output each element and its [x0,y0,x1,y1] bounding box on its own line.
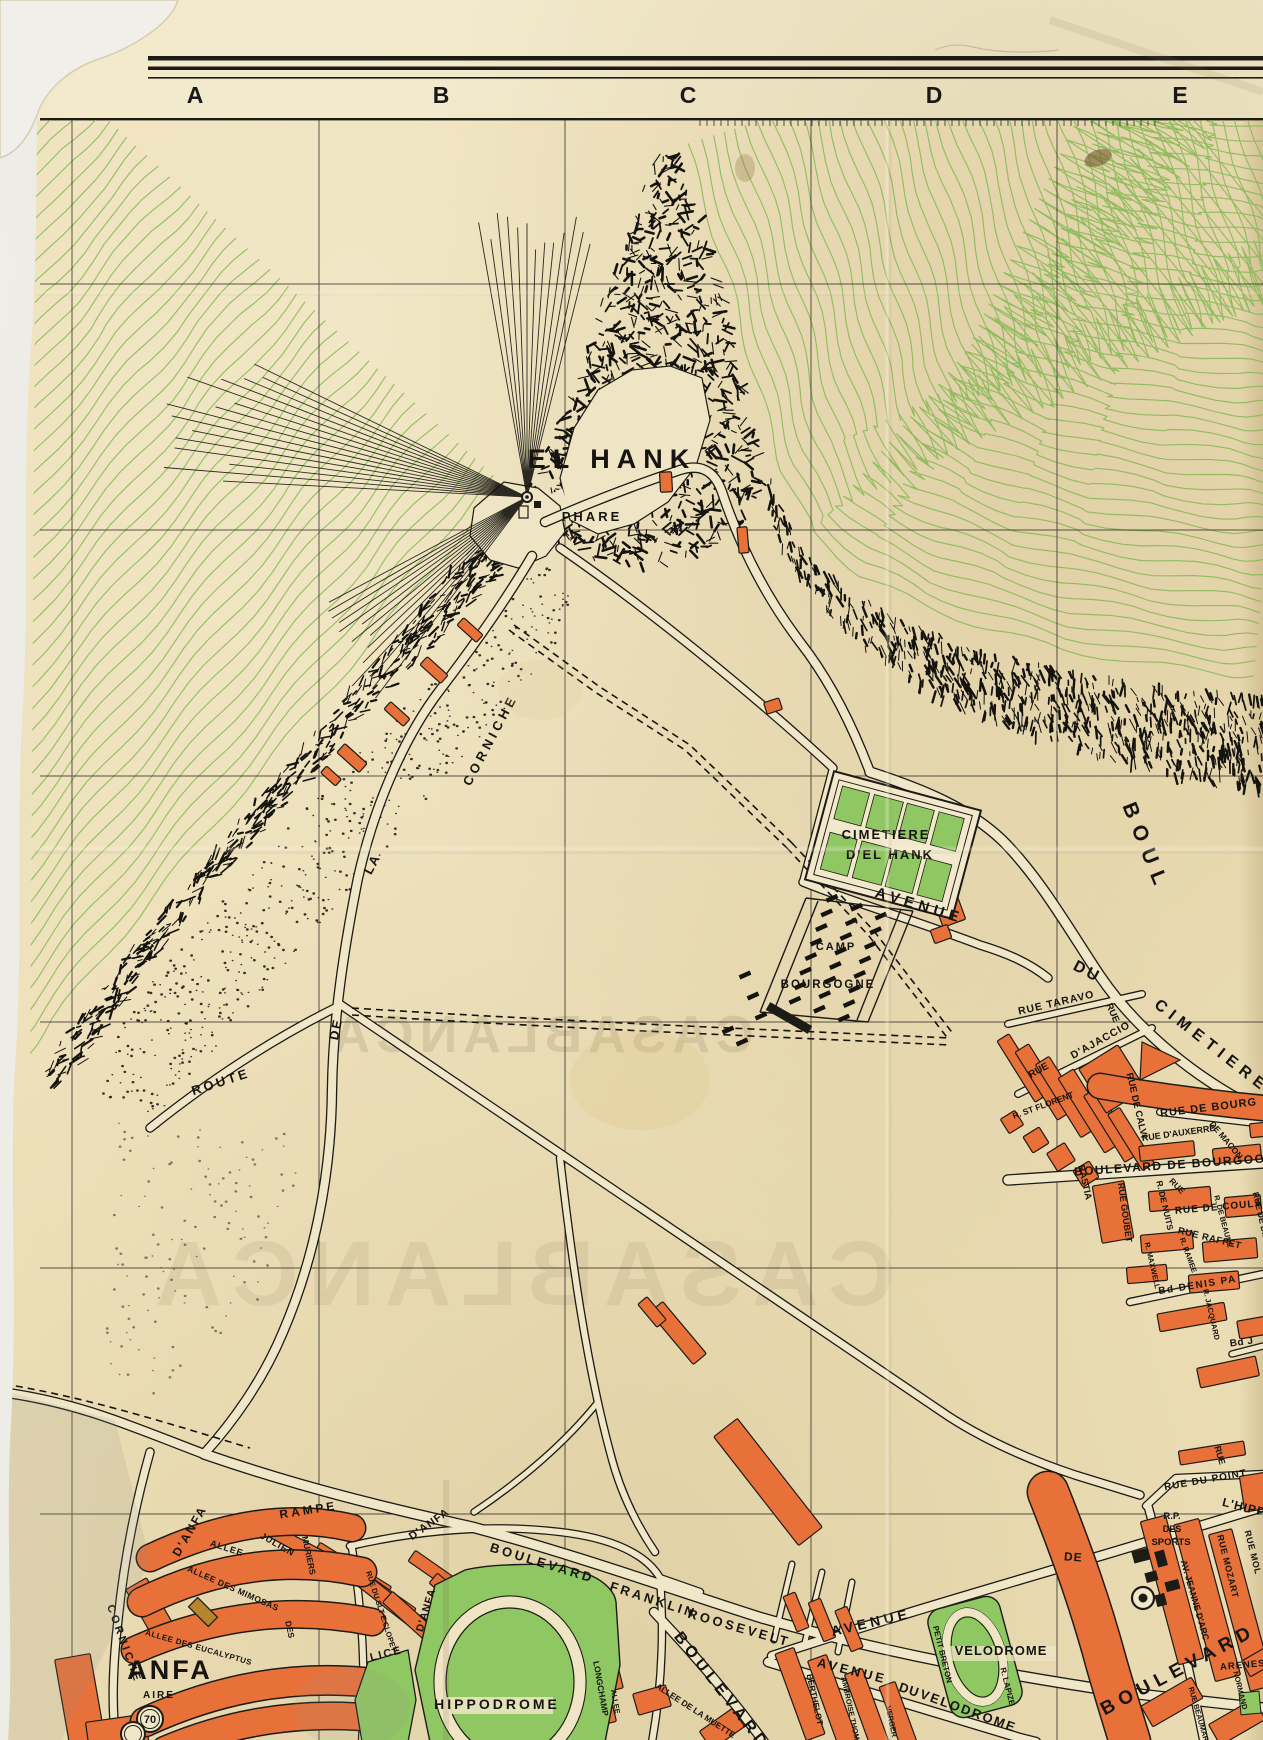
column-letter: C [680,82,697,108]
map-label: DE [1063,1549,1083,1564]
column-letter: D [926,82,943,108]
column-letter: E [1172,82,1187,108]
column-letter: B [433,82,450,108]
ghost-text: CASABLANCA [145,1223,894,1325]
map-label: BOURGOGNE [781,979,876,991]
map-label: EL HANK [528,444,697,474]
casablanca-el-hank-map: ABCDE CASABLANCACASABLANCA [0,0,1263,1740]
map-label: HIPPODROME [434,1696,560,1712]
map-label: DES [1163,1524,1182,1534]
map-label: VELODROME [955,1643,1048,1658]
map-label: R.P. [1163,1511,1180,1522]
map-label: PHARE [562,509,623,524]
column-letter: A [187,82,204,108]
svg-text:70: 70 [144,1714,156,1726]
map-label: SPORTS [1151,1537,1190,1548]
map-label: CAMP [816,941,856,953]
map-label: AIRE [143,1690,175,1701]
vintage-map-scan: ABCDE CASABLANCACASABLANCA [0,0,1263,1740]
